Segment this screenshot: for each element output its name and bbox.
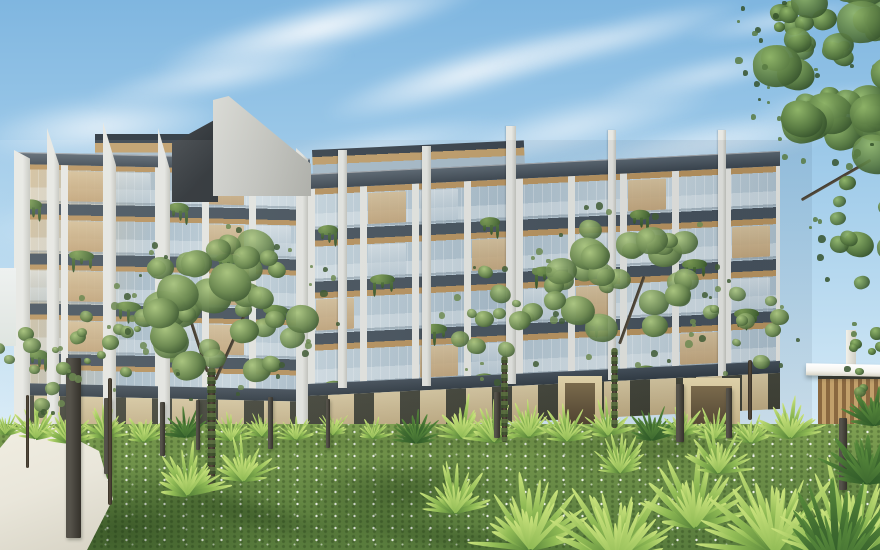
bollard-post [326, 399, 330, 448]
foliage-clump [736, 315, 748, 326]
hanging-vine [119, 309, 122, 319]
leaf-cluster [777, 116, 782, 121]
leaf-cluster [690, 319, 695, 324]
foliage-clump [855, 368, 864, 376]
hanging-vine [490, 225, 493, 235]
hanging-vine [80, 259, 83, 265]
planter-greenery [318, 225, 338, 236]
hanging-vine [44, 358, 47, 372]
leaf-cluster [114, 283, 120, 289]
foliage-clump [710, 304, 719, 312]
planter-greenery [169, 203, 189, 213]
leaf-cluster [697, 222, 702, 227]
planter-greenery [630, 209, 650, 220]
leaf-cluster [531, 256, 535, 260]
leaf-cluster [546, 259, 551, 264]
leaf-cluster [236, 392, 240, 396]
leaf-cluster [689, 332, 694, 337]
leaf-cluster [302, 350, 309, 357]
leaf-cluster [536, 248, 543, 255]
tree-trunk [108, 378, 112, 505]
bollard-post [160, 402, 165, 456]
facade-right [308, 166, 780, 384]
foliage-clump [870, 327, 880, 339]
leaf-cluster [51, 411, 55, 415]
leaf-cluster [58, 346, 63, 351]
ivy-on-trunk [501, 356, 508, 442]
leaf-cluster [124, 293, 131, 300]
leaf-cluster [651, 350, 658, 357]
hanging-vine [442, 331, 445, 337]
leaf-cluster [752, 31, 758, 37]
hanging-vine [185, 211, 188, 225]
hanging-vine [321, 233, 324, 239]
hanging-vine [535, 275, 538, 289]
hanging-vine [38, 208, 41, 222]
fin-pier [14, 150, 30, 432]
leaf-cluster [559, 318, 565, 324]
hanging-vine [172, 211, 175, 217]
foliage-clump [475, 311, 494, 327]
concrete-roof-blade [213, 96, 311, 196]
leaf-cluster [139, 274, 142, 277]
hanging-vine [381, 282, 384, 288]
foliage-clump [29, 365, 40, 374]
leaf-cluster [767, 86, 770, 89]
leaf-cluster [310, 265, 313, 268]
hanging-vine [72, 258, 75, 272]
leaf-cluster [801, 158, 807, 164]
leaf-cluster [818, 219, 822, 223]
dark-roof-sail [172, 118, 218, 202]
hanging-vine [640, 218, 643, 228]
hanging-vine [328, 233, 331, 243]
hanging-vine [633, 218, 636, 224]
fin-pier [422, 146, 431, 386]
balcony-planters [308, 166, 780, 384]
leaf-cluster [176, 372, 180, 376]
leaf-cluster [652, 213, 659, 220]
leaf-cluster [850, 64, 854, 68]
leaf-cluster [818, 235, 826, 243]
leaf-cluster [814, 68, 818, 72]
bollard-post [726, 388, 732, 438]
leaf-cluster [782, 1, 786, 5]
hanging-vine [179, 211, 182, 221]
leaf-cluster [532, 268, 537, 273]
leaf-cluster [111, 302, 119, 310]
hanging-vine [702, 267, 705, 277]
leaf-cluster [550, 316, 558, 324]
planter-greenery [370, 274, 395, 285]
hanging-vine [483, 225, 486, 231]
planter-greenery [69, 250, 94, 261]
leaf-cluster [465, 368, 468, 371]
ivy-on-trunk [611, 348, 618, 428]
foliage-clump [753, 355, 770, 370]
white-entrance-canopy [806, 363, 880, 377]
hanging-vine [390, 282, 393, 292]
hanging-vine [32, 207, 35, 217]
leaf-cluster [586, 354, 592, 360]
leaf-cluster [699, 335, 706, 342]
leaf-cluster [817, 254, 824, 261]
hanging-vine [433, 332, 436, 346]
leaf-cluster [851, 331, 857, 337]
leaf-cluster [559, 233, 562, 236]
leaf-cluster [279, 362, 285, 368]
fin-pier [338, 150, 347, 388]
leaf-cluster [107, 325, 111, 329]
leaf-cluster [773, 13, 779, 19]
fin-pier [718, 130, 726, 376]
leaf-cluster [715, 286, 722, 293]
hanging-vine [496, 225, 499, 239]
bollard-post [66, 358, 81, 538]
leaf-cluster [238, 385, 243, 390]
tree-trunk [748, 360, 752, 420]
architectural-render-scene [0, 0, 880, 550]
leaf-cluster [305, 342, 312, 349]
hanging-vine [31, 357, 34, 363]
leaf-cluster [723, 371, 728, 376]
tree-trunk [26, 395, 29, 468]
leaf-cluster [779, 363, 784, 368]
foliage-clump [265, 311, 285, 328]
hanging-vine [89, 259, 92, 269]
leaf-cluster [759, 38, 764, 43]
leaf-cluster [852, 322, 856, 326]
leaf-cluster [41, 409, 47, 415]
leaf-cluster [767, 101, 770, 104]
leaf-cluster [754, 81, 761, 88]
leaf-cluster [189, 398, 193, 402]
leaf-cluster [226, 224, 230, 228]
hanging-vine [334, 233, 337, 247]
bollard-post [196, 400, 200, 450]
leaf-cluster [735, 57, 743, 65]
leaf-cluster [454, 294, 461, 301]
leaf-cluster [853, 154, 858, 159]
leaf-cluster [125, 328, 132, 335]
leaf-cluster [741, 6, 746, 11]
leaf-cluster [782, 154, 788, 160]
leaf-cluster [727, 279, 731, 283]
leaf-cluster [320, 290, 328, 298]
leaf-cluster [502, 266, 508, 272]
leaf-cluster [596, 202, 603, 209]
leaf-cluster [143, 348, 150, 355]
leaf-cluster [79, 295, 85, 301]
leaf-cluster [870, 143, 874, 147]
hanging-vine [373, 283, 376, 297]
leaf-cluster [439, 312, 446, 319]
bollard-post [268, 397, 273, 449]
leaf-cluster [762, 64, 768, 70]
leaf-cluster [846, 163, 853, 170]
left-background-wall [0, 268, 16, 346]
leaf-cluster [288, 248, 292, 252]
leaf-cluster [715, 264, 721, 270]
bollard-post [676, 384, 684, 442]
leaf-cluster [533, 361, 539, 367]
planter-greenery [480, 217, 500, 228]
leaf-cluster [236, 227, 242, 233]
bollard-post [494, 392, 500, 438]
leaf-cluster [685, 340, 693, 348]
